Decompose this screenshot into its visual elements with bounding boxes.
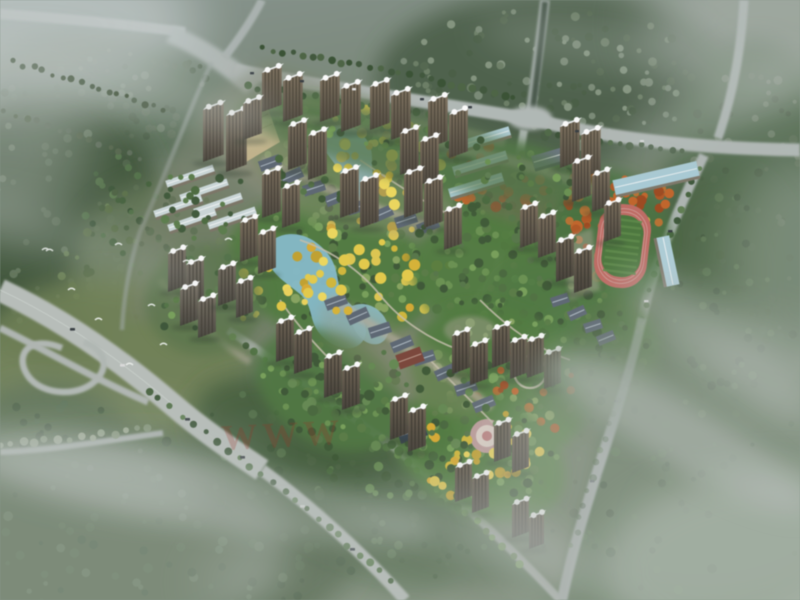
svg-text:WWW: WWW xyxy=(220,412,345,458)
